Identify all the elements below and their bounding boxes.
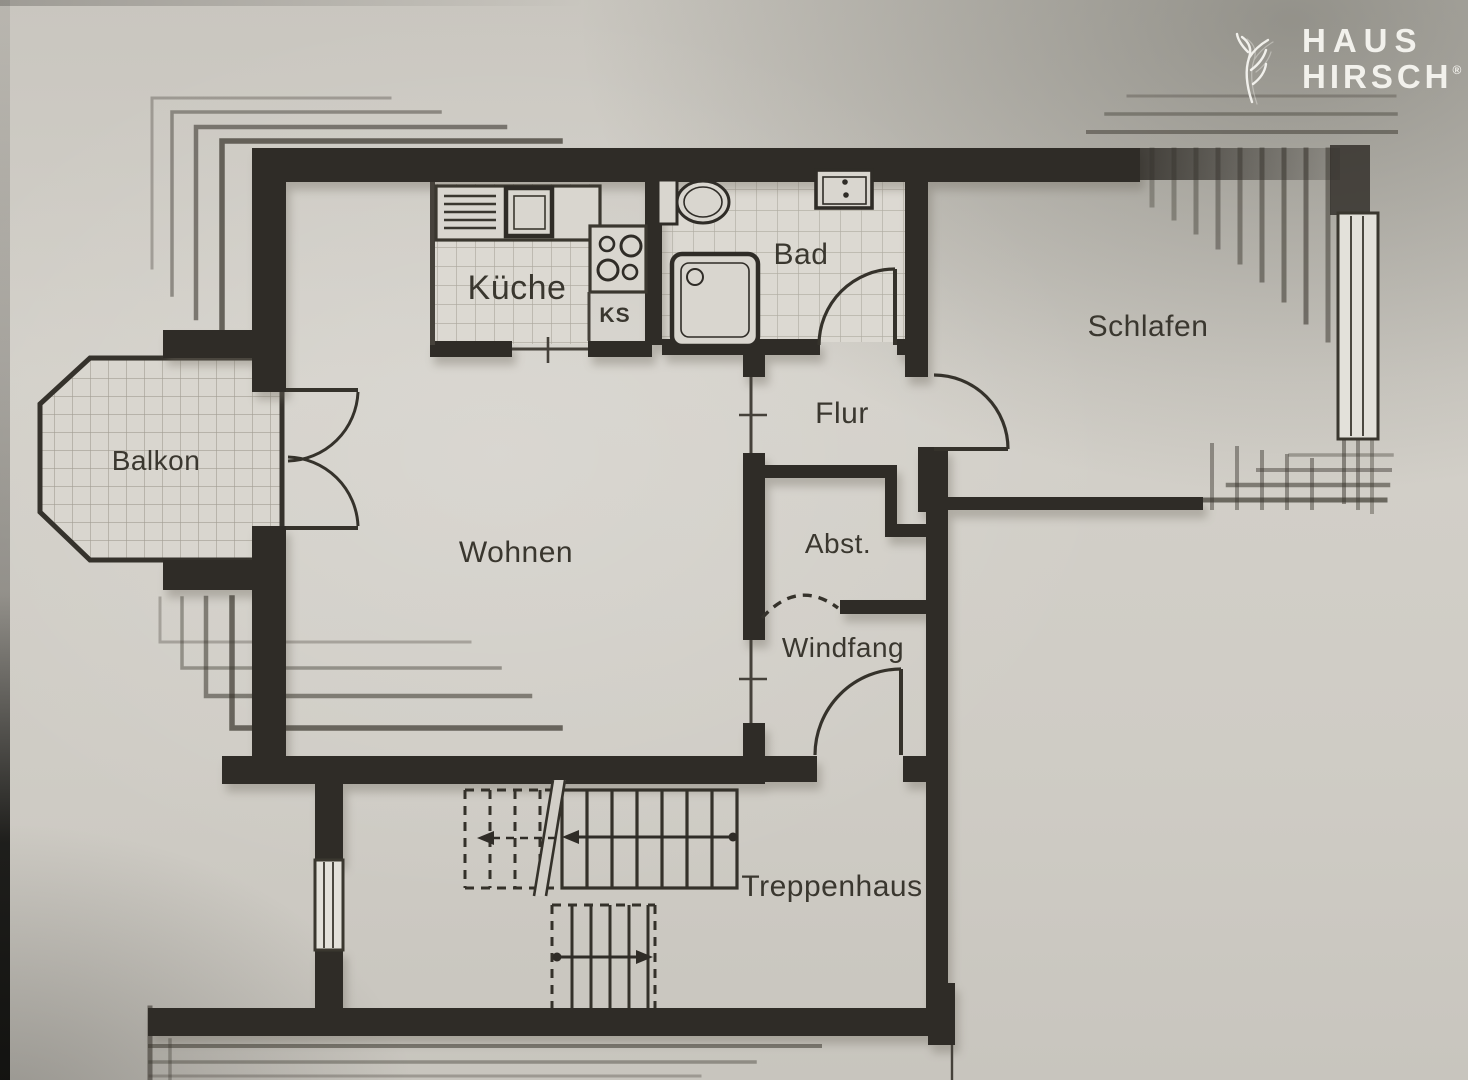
apartment-entry-door [815,669,901,755]
bedroom-window [1338,213,1378,439]
room-label-flur: Flur [815,397,869,430]
outer-wall-hatch-bedroom-bottom [1205,440,1392,512]
shower-icon [672,254,758,346]
stairs-upper-flight [465,790,737,888]
toilet-icon [658,180,729,224]
fridge-compartment: KS [589,292,631,341]
fridge-label: KS [599,304,630,327]
room-label-windfang: Windfang [782,632,904,663]
floor-plan-photo: { "logo": { "line1": "HAUS", "line2": "H… [0,0,1468,1080]
storage-door-dashed-arc [762,595,838,618]
registered-mark: ® [1453,63,1462,77]
kitchen-counter-sink [436,186,600,240]
outer-wall-corner-block [1330,145,1370,215]
outer-wall-hatch-bottom-left [160,598,560,728]
stairwell-window [315,860,343,950]
balcony-french-doors [286,390,358,528]
stag-antler-icon [1214,14,1300,106]
logo-line2: HIRSCH® [1302,60,1461,93]
room-label-kueche: Küche [468,269,567,307]
room-label-schlafen: Schlafen [1088,310,1209,343]
photo-edge-shadow-top [0,0,1468,6]
bedroom-door [934,375,1008,449]
logo-line1: HAUS [1302,24,1461,57]
room-label-abstellraum: Abst. [805,528,871,559]
wall-openings [512,337,952,1080]
outer-wall-fading-bar [1140,148,1340,180]
washbasin-icon [816,170,872,208]
floor-plan-drawing: KS [0,0,1468,1080]
kitchen-partition-wall [430,182,435,345]
photo-edge-shadow-left [0,0,10,1080]
room-label-balkon: Balkon [112,445,201,476]
stove-icon [590,226,646,292]
room-label-bad: Bad [774,238,829,271]
room-label-wohnen: Wohnen [459,536,573,569]
stairs-walk-line-down [553,950,654,964]
room-label-treppenhaus: Treppenhaus [741,870,922,903]
brand-logo: HAUS HIRSCH® [1214,14,1464,110]
